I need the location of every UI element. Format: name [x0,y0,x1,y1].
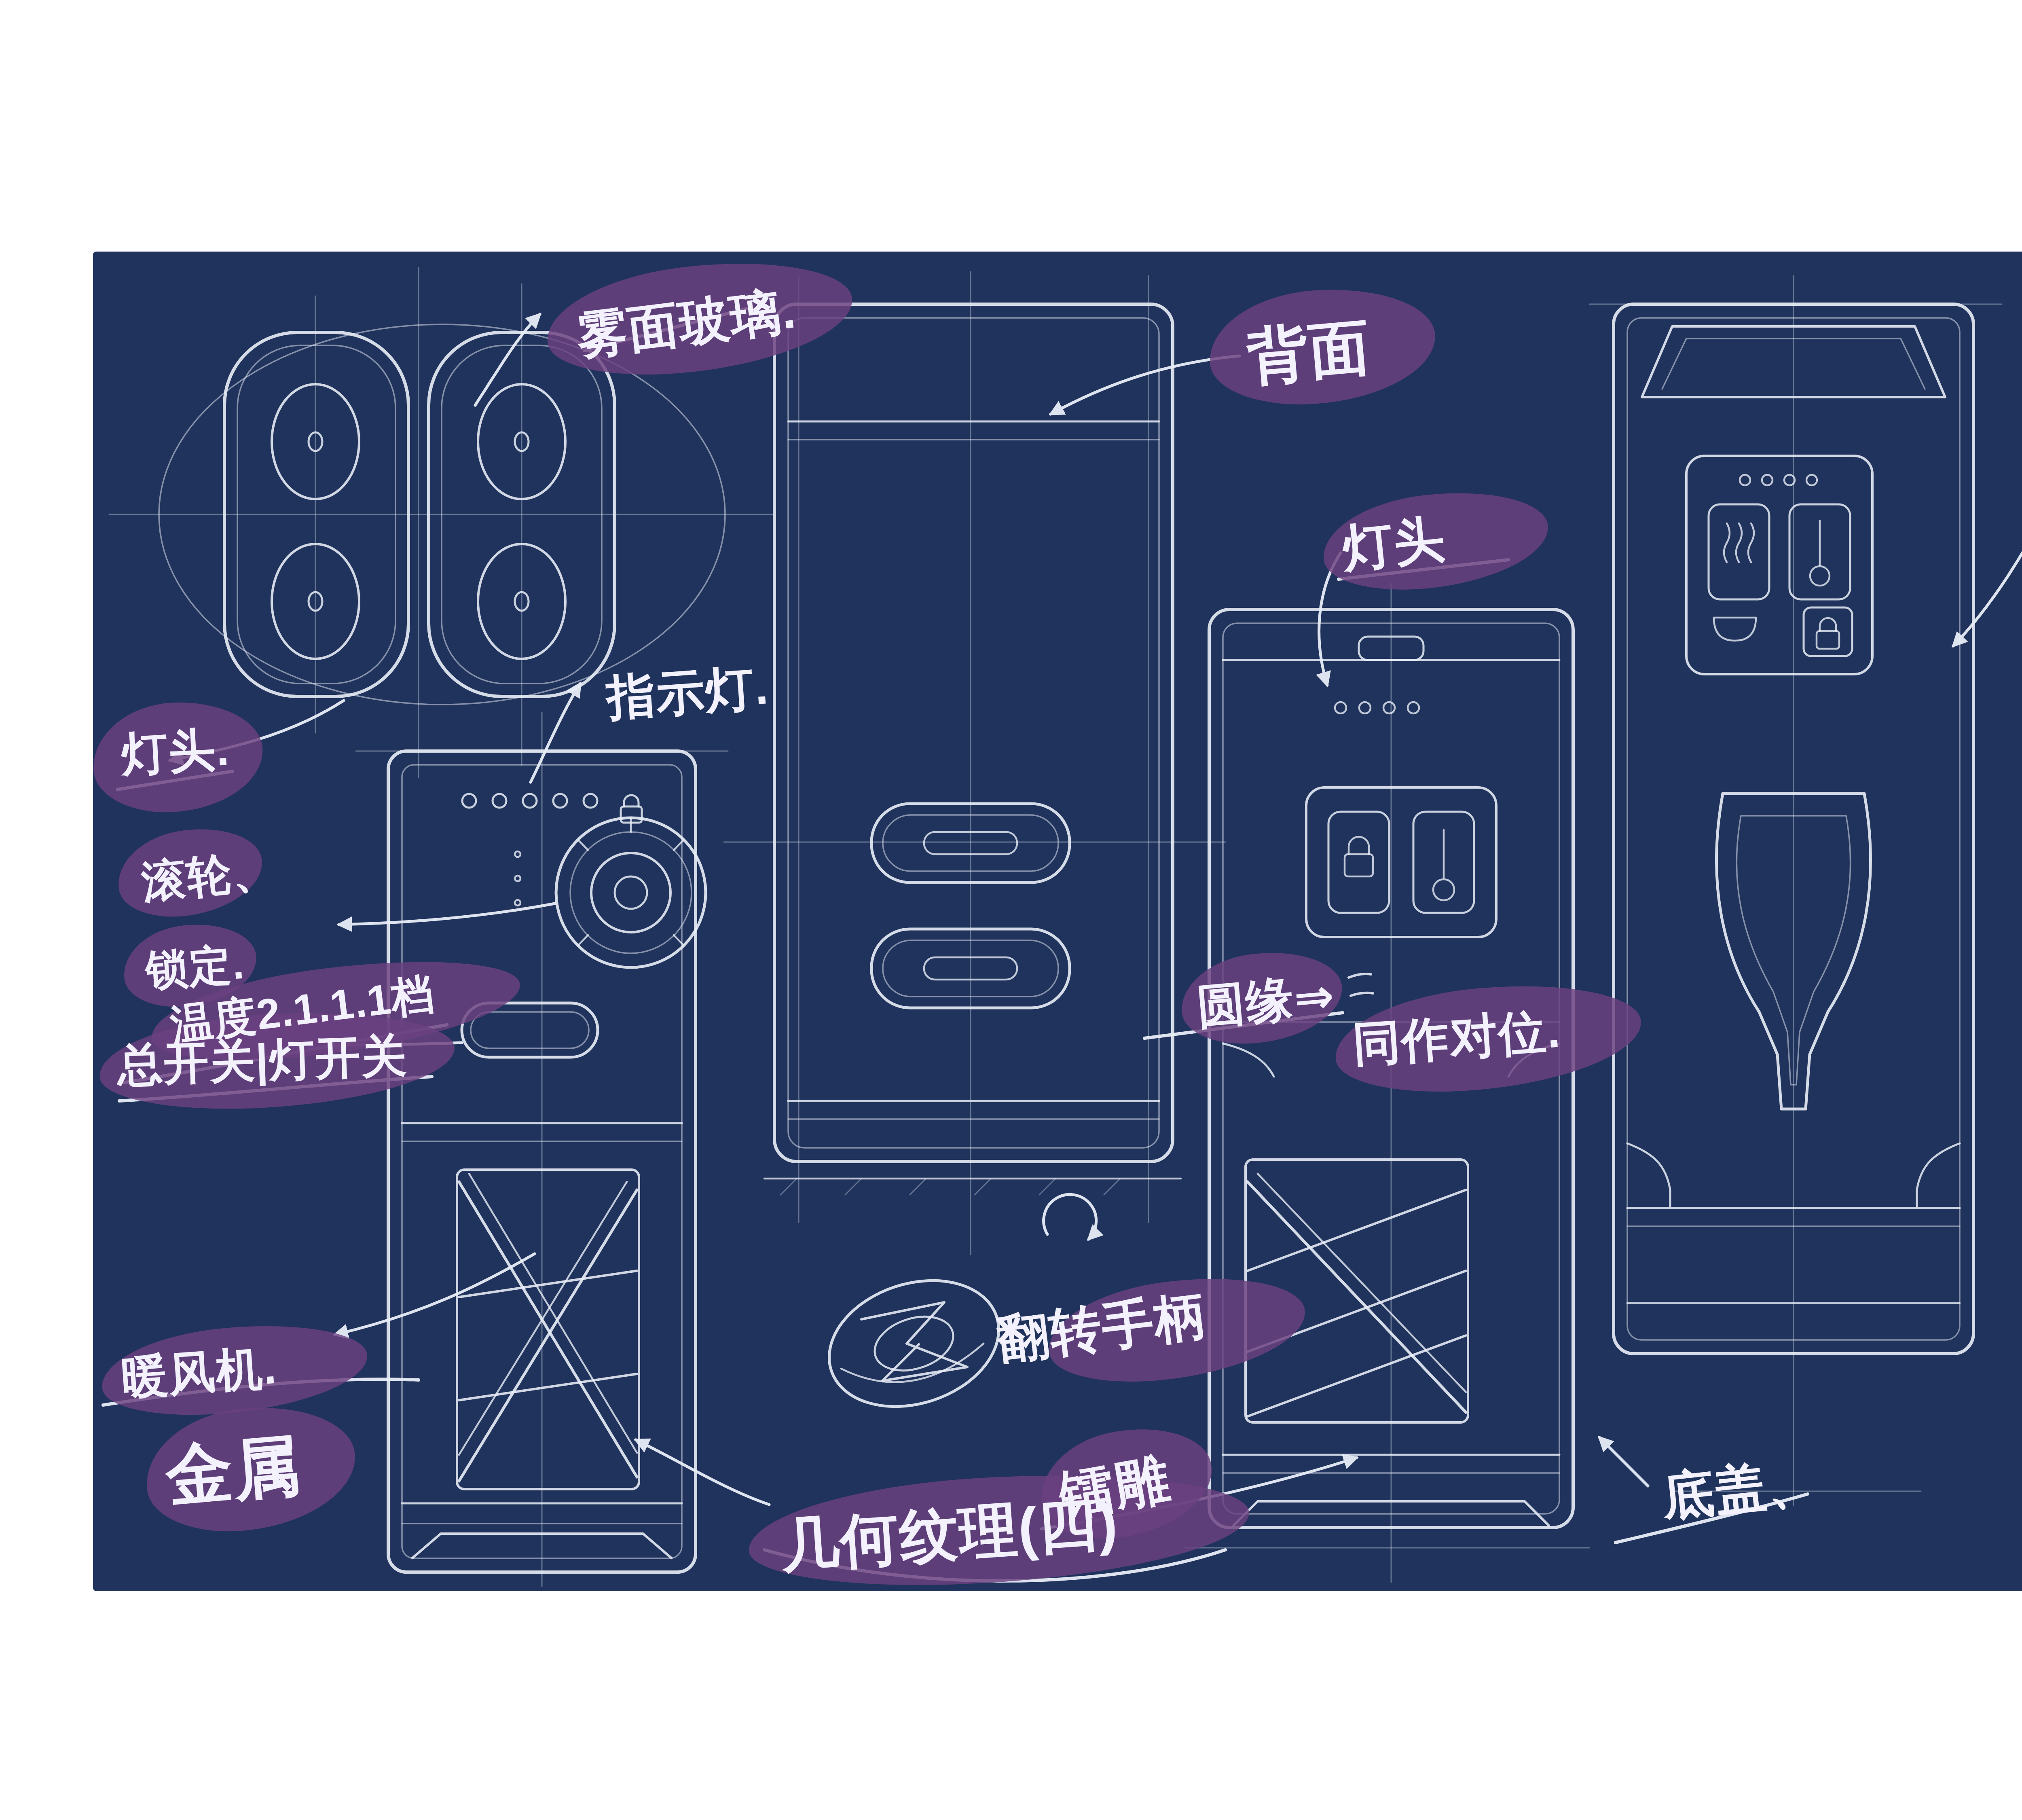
indicator-lights-icons [462,794,597,808]
x-pattern-grill [457,1170,639,1489]
lock-icon [1345,837,1373,876]
blueprint-panel: 雾面玻璃. 背面 灯头 操作区. 指示灯 指示灯. 灯头. 滚轮、 锁定. 温度… [93,252,2022,1591]
sketch-canvas [93,252,2022,1591]
control-panel [1306,787,1496,937]
control-panel [1686,456,1872,674]
roller-knob [556,818,706,967]
annotation-main-light-switch: 总开关|灯开关 [116,1025,408,1096]
back-view-device-sketch [724,272,1225,1255]
rotate-arrow-icon [1044,1194,1096,1239]
handle-swirl-doodle [813,1260,1015,1427]
annotation-lamp-head-mid: 灯头 [1339,505,1449,584]
front-view-device-sketch [356,713,728,1586]
thermometer-icon [1810,521,1830,586]
hatch-ticks [780,1179,1120,1195]
annotation-warm-fan: 暖风机. [119,1336,279,1409]
annotation-indicator-left: 指示灯. [605,654,771,732]
slide: 雾面玻璃. 背面 灯头 操作区. 指示灯 指示灯. 灯头. 滚轮、 锁定. 温度… [0,0,2022,1820]
shield-device-sketch [1589,276,2002,1505]
annotation-lamp-head-left: 灯头. [120,718,231,786]
lock-icon [1817,618,1839,649]
heater-icon [1724,523,1754,562]
annotation-round-edge: 圆缘⇒ [1195,963,1338,1040]
annotation-back-side: 背面 [1244,307,1374,399]
thermometer-icon [1433,830,1454,900]
cup-icon [1714,618,1756,641]
annotation-metal: 金属 [162,1421,305,1522]
